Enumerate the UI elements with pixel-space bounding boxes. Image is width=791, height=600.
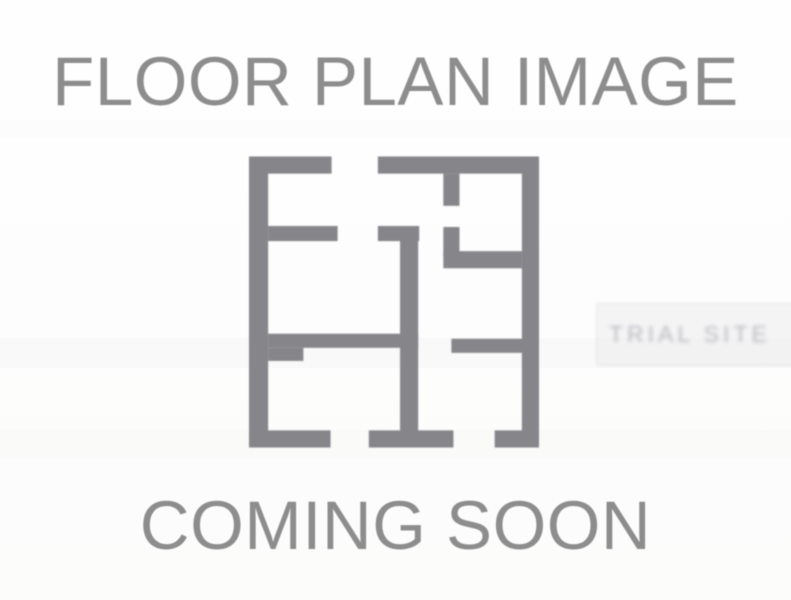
watermark-badge: TRIAL SITE	[596, 303, 791, 366]
placeholder-image: FLOOR PLAN IMAGE	[0, 0, 791, 600]
watermark-text: TRIAL SITE	[609, 321, 771, 348]
floor-plan-icon	[249, 156, 539, 448]
compression-band	[0, 120, 791, 138]
floor-plan-title: FLOOR PLAN IMAGE	[0, 47, 791, 116]
coming-soon-label: COMING SOON	[0, 491, 791, 560]
